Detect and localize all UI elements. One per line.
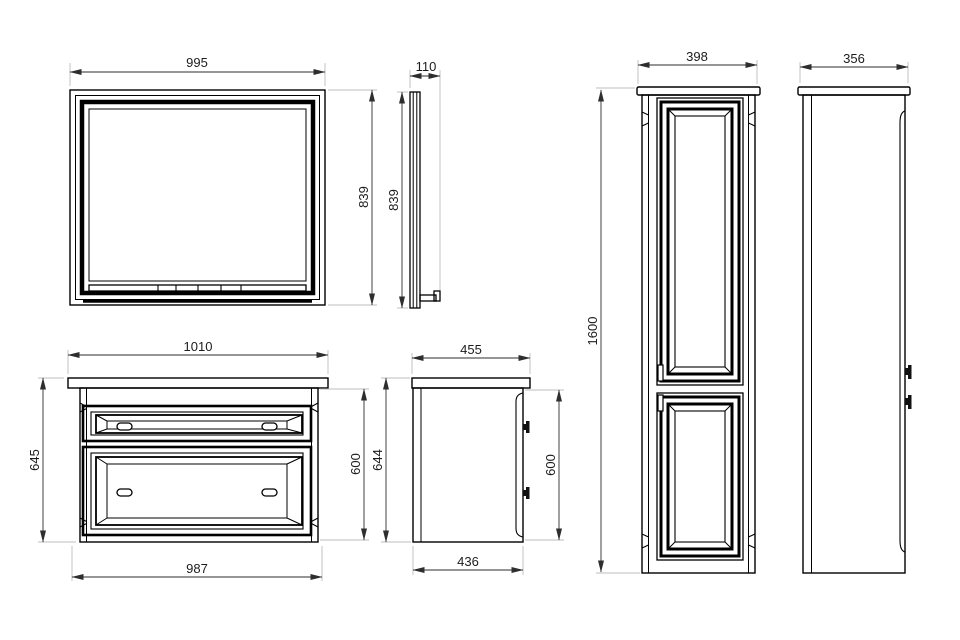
vanity-front-view: 1010 645 987 600 — [27, 339, 369, 581]
pilaster-notch — [312, 403, 319, 412]
door-edge-hook — [900, 111, 905, 123]
dim-label-cabinet-height: 1600 — [585, 317, 600, 346]
drawer-handle — [262, 489, 277, 496]
door-handle — [658, 395, 663, 411]
dim-label-mirror-side-height: 839 — [386, 189, 401, 211]
dim-label-vanity-bottom-width: 987 — [186, 561, 208, 576]
drawer-handle — [262, 423, 277, 430]
stile-notch — [642, 534, 649, 548]
frame-line — [76, 96, 320, 300]
handle-profile — [526, 421, 530, 433]
dim-label-mirror-height: 839 — [356, 186, 371, 208]
dim-vanity-side-top-depth: 455 — [412, 342, 530, 374]
dim-mirror-front-width: 995 — [70, 55, 325, 86]
dim-label-mirror-width: 995 — [186, 55, 208, 70]
dim-vanity-side-bottom-depth: 436 — [413, 546, 523, 575]
cabinet-top-plate — [637, 87, 760, 95]
dim-cabinet-width: 398 — [638, 49, 757, 84]
dim-vanity-bottom-width: 987 — [72, 546, 322, 581]
vanity-bottom-drawer — [83, 447, 311, 535]
mirror-frame — [70, 90, 325, 305]
cabinet-side-view: 356 — [798, 51, 912, 573]
drawer-bevel-inner — [107, 421, 287, 429]
mirror-side-view: 110 839 — [386, 59, 440, 308]
handle-profile — [526, 487, 530, 499]
shelf-end-cap — [434, 291, 440, 301]
dim-vanity-side-carcass-height: 600 — [525, 390, 564, 540]
dim-label-vanity-top-depth: 455 — [460, 342, 482, 357]
mirror-slab — [410, 92, 420, 308]
dim-label-vanity-height: 645 — [27, 449, 42, 471]
vanity-body — [80, 388, 318, 542]
dim-label-vanity-top-width: 1010 — [184, 339, 213, 354]
door-bevel-inner — [675, 411, 725, 542]
frame-band — [82, 102, 313, 293]
door-bevel-inner — [675, 116, 725, 367]
drawing-canvas: 995 839 110 839 — [0, 0, 960, 640]
door-frame — [657, 393, 743, 560]
dim-label-cabinet-depth: 356 — [843, 51, 865, 66]
countertop-side — [412, 378, 530, 388]
furniture-dimension-drawing: 995 839 110 839 — [0, 0, 960, 640]
mirror-shelf-side — [420, 291, 440, 301]
handle-profile — [908, 395, 912, 409]
dim-label-vanity-carcass-height: 600 — [348, 453, 363, 475]
door-band — [661, 102, 739, 381]
drawer-frame — [83, 406, 311, 441]
mirror-front-view: 995 839 — [70, 55, 377, 305]
handle-profile — [523, 490, 526, 496]
dim-mirror-front-height: 839 — [328, 90, 377, 305]
mirror-glass-edge — [89, 109, 306, 281]
cabinet-upper-door — [657, 98, 743, 385]
dim-cabinet-side-depth: 356 — [800, 51, 908, 83]
dim-label-vanity-side-carcass-height: 600 — [543, 454, 558, 476]
pilaster-notch — [312, 518, 319, 527]
cabinet-side-top-plate — [798, 87, 910, 95]
countertop — [68, 378, 328, 388]
handle-profile — [523, 424, 526, 430]
slab-outline — [410, 92, 420, 308]
drawer-handle — [117, 489, 132, 496]
door-bevel-outer — [668, 404, 732, 549]
bevel-corner — [668, 109, 732, 374]
dim-vanity-overall-height: 645 — [27, 378, 76, 542]
stile-notch — [749, 534, 756, 548]
cabinet-lower-door — [657, 393, 743, 560]
door-edge-hook — [900, 540, 905, 552]
drawer-bevel-inner — [107, 464, 287, 518]
stile-notch — [749, 112, 756, 126]
door-band — [661, 397, 739, 556]
vanity-side-view: 455 644 600 436 — [370, 342, 564, 575]
dim-vanity-carcass-height: 600 — [320, 389, 369, 540]
stile-notch — [642, 112, 649, 126]
vanity-side-body — [413, 388, 523, 542]
vanity-top-drawer — [83, 406, 311, 441]
dim-cabinet-height: 1600 — [585, 88, 640, 573]
vanity-pilasters — [80, 388, 318, 542]
dim-label-vanity-side-height: 644 — [370, 449, 385, 471]
drawer-front-hook — [516, 393, 523, 402]
dim-mirror-side-depth: 110 — [410, 59, 440, 290]
door-handle — [658, 365, 663, 381]
door-bevel-outer — [668, 109, 732, 374]
dim-vanity-top-width: 1010 — [68, 339, 328, 374]
dim-label-mirror-depth: 110 — [416, 59, 437, 74]
frame-outer — [70, 90, 325, 305]
door-edge — [900, 111, 912, 552]
handle-profile — [908, 365, 912, 379]
dim-label-cabinet-width: 398 — [686, 49, 708, 64]
bevel-corner — [668, 404, 732, 549]
dim-mirror-side-height: 839 — [386, 92, 408, 308]
handle-profile — [905, 398, 908, 405]
cabinet-front-view: 398 1600 — [585, 49, 760, 573]
door-frame — [657, 98, 743, 385]
dim-label-vanity-bottom-depth: 436 — [457, 554, 479, 569]
handle-profile — [905, 368, 908, 375]
cabinet-side-body — [803, 95, 905, 573]
drawer-handle — [117, 423, 132, 430]
drawer-front-hook — [516, 528, 523, 537]
dim-vanity-side-overall-height: 644 — [370, 378, 411, 542]
